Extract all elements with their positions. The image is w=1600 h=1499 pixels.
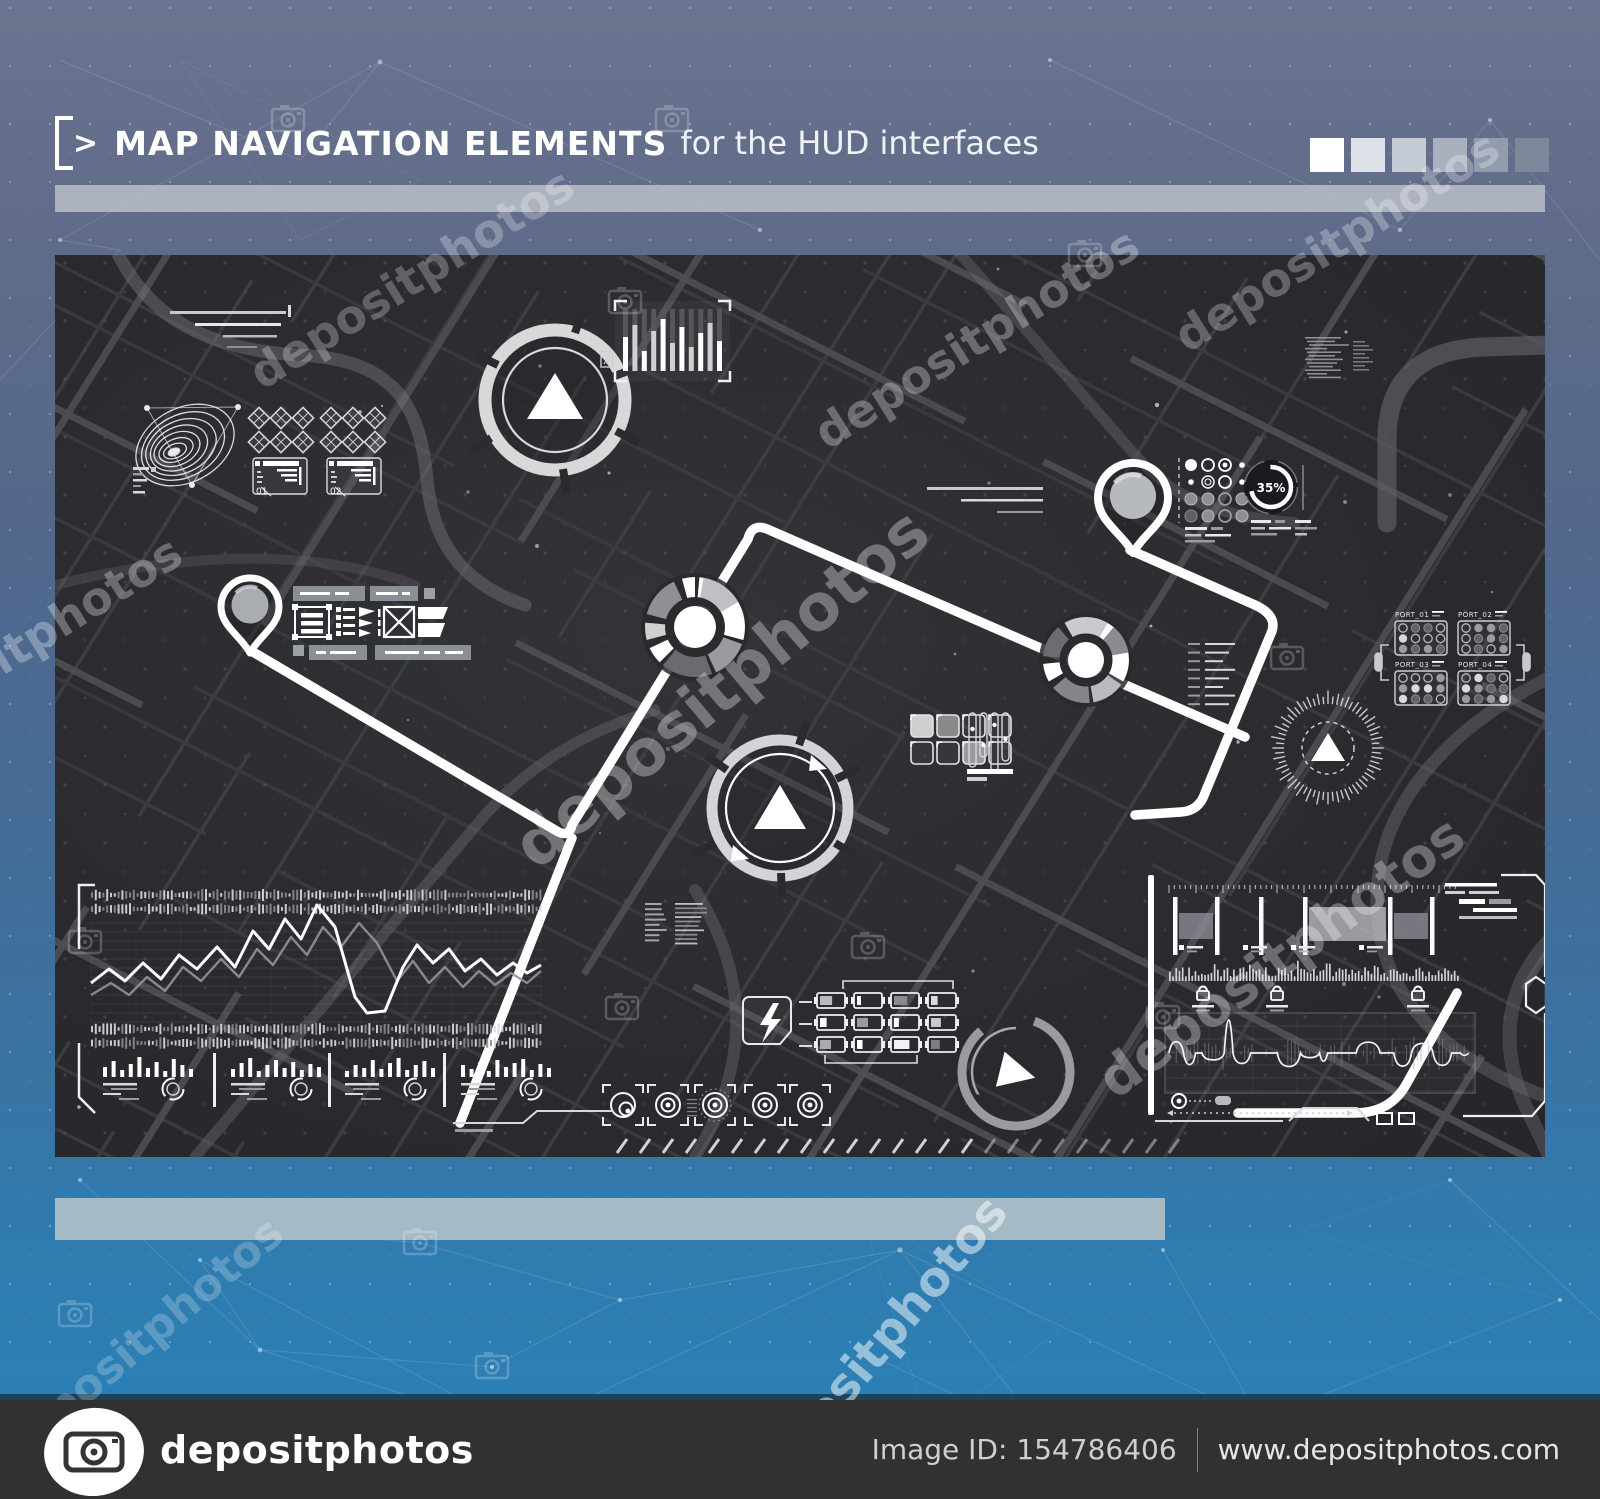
page-title-strong: MAP NAVIGATION ELEMENTS [114, 124, 667, 163]
site-url[interactable]: www.depositphotos.com [1218, 1433, 1560, 1466]
footer-divider-bar [55, 1198, 1165, 1240]
header-divider-bar [55, 185, 1545, 212]
image-id: Image ID: 154786406 [872, 1433, 1177, 1466]
palette-swatch[interactable] [1433, 138, 1467, 172]
waypoint-donut[interactable] [641, 573, 749, 681]
footer-separator [1197, 1428, 1198, 1472]
palette-swatch[interactable] [1474, 138, 1508, 172]
palette-swatch[interactable] [1515, 138, 1549, 172]
panel-label: 02 [330, 487, 341, 497]
palette-swatch[interactable] [1310, 138, 1344, 172]
brand-name: depositphotos [160, 1428, 474, 1472]
title-bracket-icon [55, 116, 73, 170]
gauge-percent-label: 35% [1257, 481, 1286, 495]
footer: depositphotos Image ID: 154786406 www.de… [0, 1400, 1600, 1499]
svg-text:PORT_04: PORT_04 [1458, 661, 1492, 669]
info-panel-01[interactable]: 01 [253, 458, 307, 497]
camera-icon [59, 1300, 91, 1326]
svg-text:PORT_01: PORT_01 [1395, 611, 1429, 619]
svg-text:PORT_02: PORT_02 [1458, 611, 1492, 619]
brand-logo [40, 1404, 150, 1496]
map-panel: 01 02 [55, 255, 1545, 1157]
chevron-icon: > [73, 126, 98, 161]
page: > MAP NAVIGATION ELEMENTS for the HUD in… [0, 0, 1600, 1499]
palette-swatch[interactable] [1351, 138, 1385, 172]
svg-text:PORT_03: PORT_03 [1395, 661, 1429, 669]
panel-label: 01 [256, 487, 267, 497]
equalizer-panel [601, 301, 730, 381]
camera-icon [476, 1352, 508, 1378]
waypoint-donut[interactable] [1039, 613, 1133, 707]
palette-swatch[interactable] [1392, 138, 1426, 172]
page-title-light: for the HUD interfaces [680, 124, 1039, 162]
palette-row [1310, 138, 1549, 172]
info-panel-02[interactable]: 02 [327, 458, 381, 497]
header: > MAP NAVIGATION ELEMENTS for the HUD in… [55, 114, 1039, 172]
